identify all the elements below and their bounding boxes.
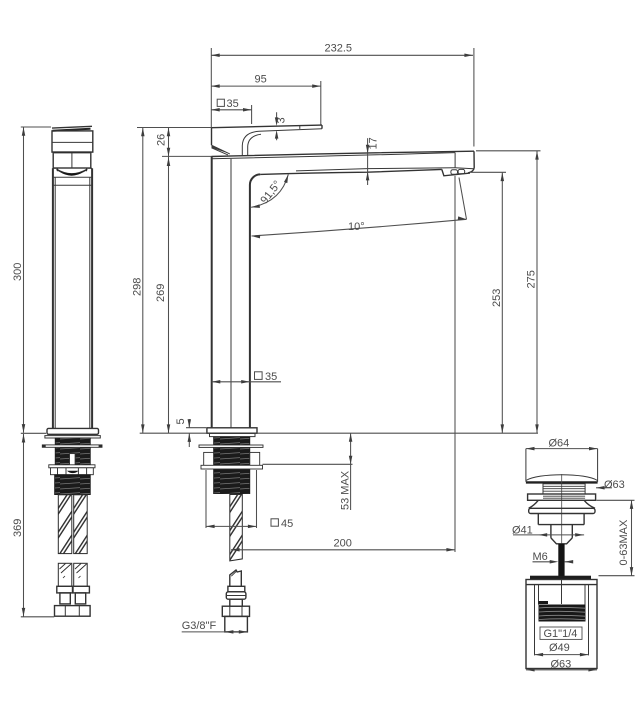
svg-text:45: 45 <box>281 518 293 530</box>
svg-text:300: 300 <box>12 263 24 281</box>
svg-text:53 MAX: 53 MAX <box>340 470 352 510</box>
svg-text:5: 5 <box>175 418 187 424</box>
svg-text:26: 26 <box>156 134 168 146</box>
svg-text:275: 275 <box>526 270 538 288</box>
svg-text:G3/8"F: G3/8"F <box>182 620 217 632</box>
svg-text:91,5°: 91,5° <box>258 179 283 207</box>
svg-text:95: 95 <box>255 73 267 85</box>
svg-text:17: 17 <box>368 137 380 149</box>
svg-text:35: 35 <box>227 98 239 110</box>
svg-text:269: 269 <box>155 284 167 302</box>
svg-text:Ø41: Ø41 <box>512 525 533 537</box>
svg-text:298: 298 <box>132 278 144 296</box>
svg-text:Ø63: Ø63 <box>604 479 625 491</box>
svg-text:232.5: 232.5 <box>325 43 353 55</box>
svg-text:10°: 10° <box>348 221 365 233</box>
svg-text:369: 369 <box>12 519 24 537</box>
svg-text:0-63MAX: 0-63MAX <box>618 519 630 566</box>
svg-text:G1"1/4: G1"1/4 <box>544 628 578 640</box>
svg-text:200: 200 <box>334 538 352 550</box>
svg-text:M6: M6 <box>533 551 548 563</box>
svg-text:Ø63: Ø63 <box>551 659 572 671</box>
svg-text:35: 35 <box>265 371 277 383</box>
svg-text:3: 3 <box>276 117 288 123</box>
svg-text:253: 253 <box>491 289 503 307</box>
svg-text:Ø49: Ø49 <box>549 642 570 654</box>
svg-text:Ø64: Ø64 <box>549 438 570 450</box>
